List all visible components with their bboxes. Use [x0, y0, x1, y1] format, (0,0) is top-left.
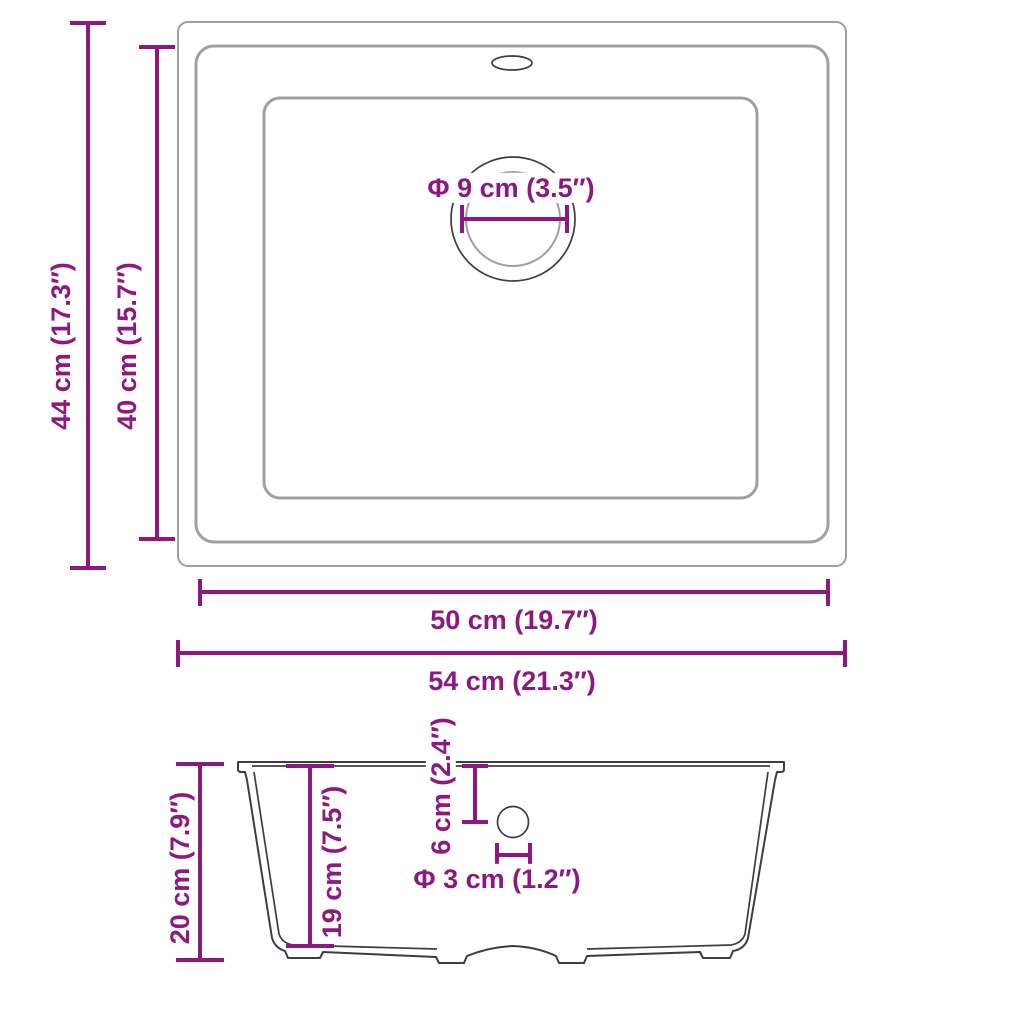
dim-label-total-height-20cm: 20 cm (7.9″)	[165, 787, 195, 950]
sink-rim-edge	[196, 46, 828, 542]
dim-line-rim-height-40cm	[139, 47, 175, 539]
sink-basin-edge	[264, 98, 757, 498]
dim-line-drain-diameter-9cm	[462, 205, 567, 233]
dim-label-hole-diameter-3cm: Φ 3 cm (1.2″)	[408, 864, 585, 894]
dim-label-rim-height-40cm: 40 cm (15.7″)	[112, 257, 142, 435]
sink-top-view	[178, 22, 846, 566]
sink-inner-wall-right	[587, 772, 768, 949]
dim-label-outer-width-54cm: 54 cm (21.3″)	[423, 666, 601, 696]
dim-label-drain-diameter-9cm: Φ 9 cm (3.5″)	[422, 173, 599, 203]
dim-line-hole-offset-6cm	[462, 766, 488, 822]
dim-line-outer-width-54cm	[178, 640, 845, 667]
dim-line-rim-width-50cm	[200, 579, 828, 606]
dim-label-hole-offset-6cm: 6 cm (2.4″)	[426, 712, 456, 860]
faucet-hole-icon	[492, 56, 532, 70]
sink-dimension-diagram: 44 cm (17.3″) 40 cm (15.7″) Φ 9 cm (3.5″…	[0, 0, 1024, 1024]
side-hole-circle	[498, 807, 529, 838]
dim-label-rim-width-50cm: 50 cm (19.7″)	[425, 605, 603, 635]
sink-outer-edge	[178, 22, 846, 566]
dim-label-basin-depth-19cm: 19 cm (7.5″)	[317, 781, 347, 944]
dim-label-outer-height-44cm: 44 cm (17.3″)	[46, 257, 76, 435]
